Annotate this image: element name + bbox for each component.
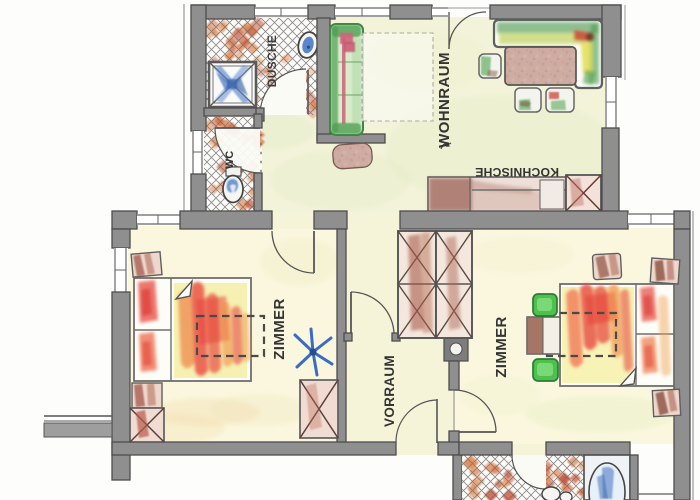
svg-text:ZIMMER: ZIMMER <box>271 298 288 360</box>
svg-text:WOHNRAUM: WOHNRAUM <box>436 52 453 148</box>
svg-text:WC: WC <box>224 151 236 169</box>
svg-text:KOCHNISCHE: KOCHNISCHE <box>475 165 559 179</box>
svg-text:VORRAUM: VORRAUM <box>382 355 397 427</box>
svg-text:ZIMMER: ZIMMER <box>493 316 510 378</box>
svg-text:DUSCHE: DUSCHE <box>265 35 279 87</box>
